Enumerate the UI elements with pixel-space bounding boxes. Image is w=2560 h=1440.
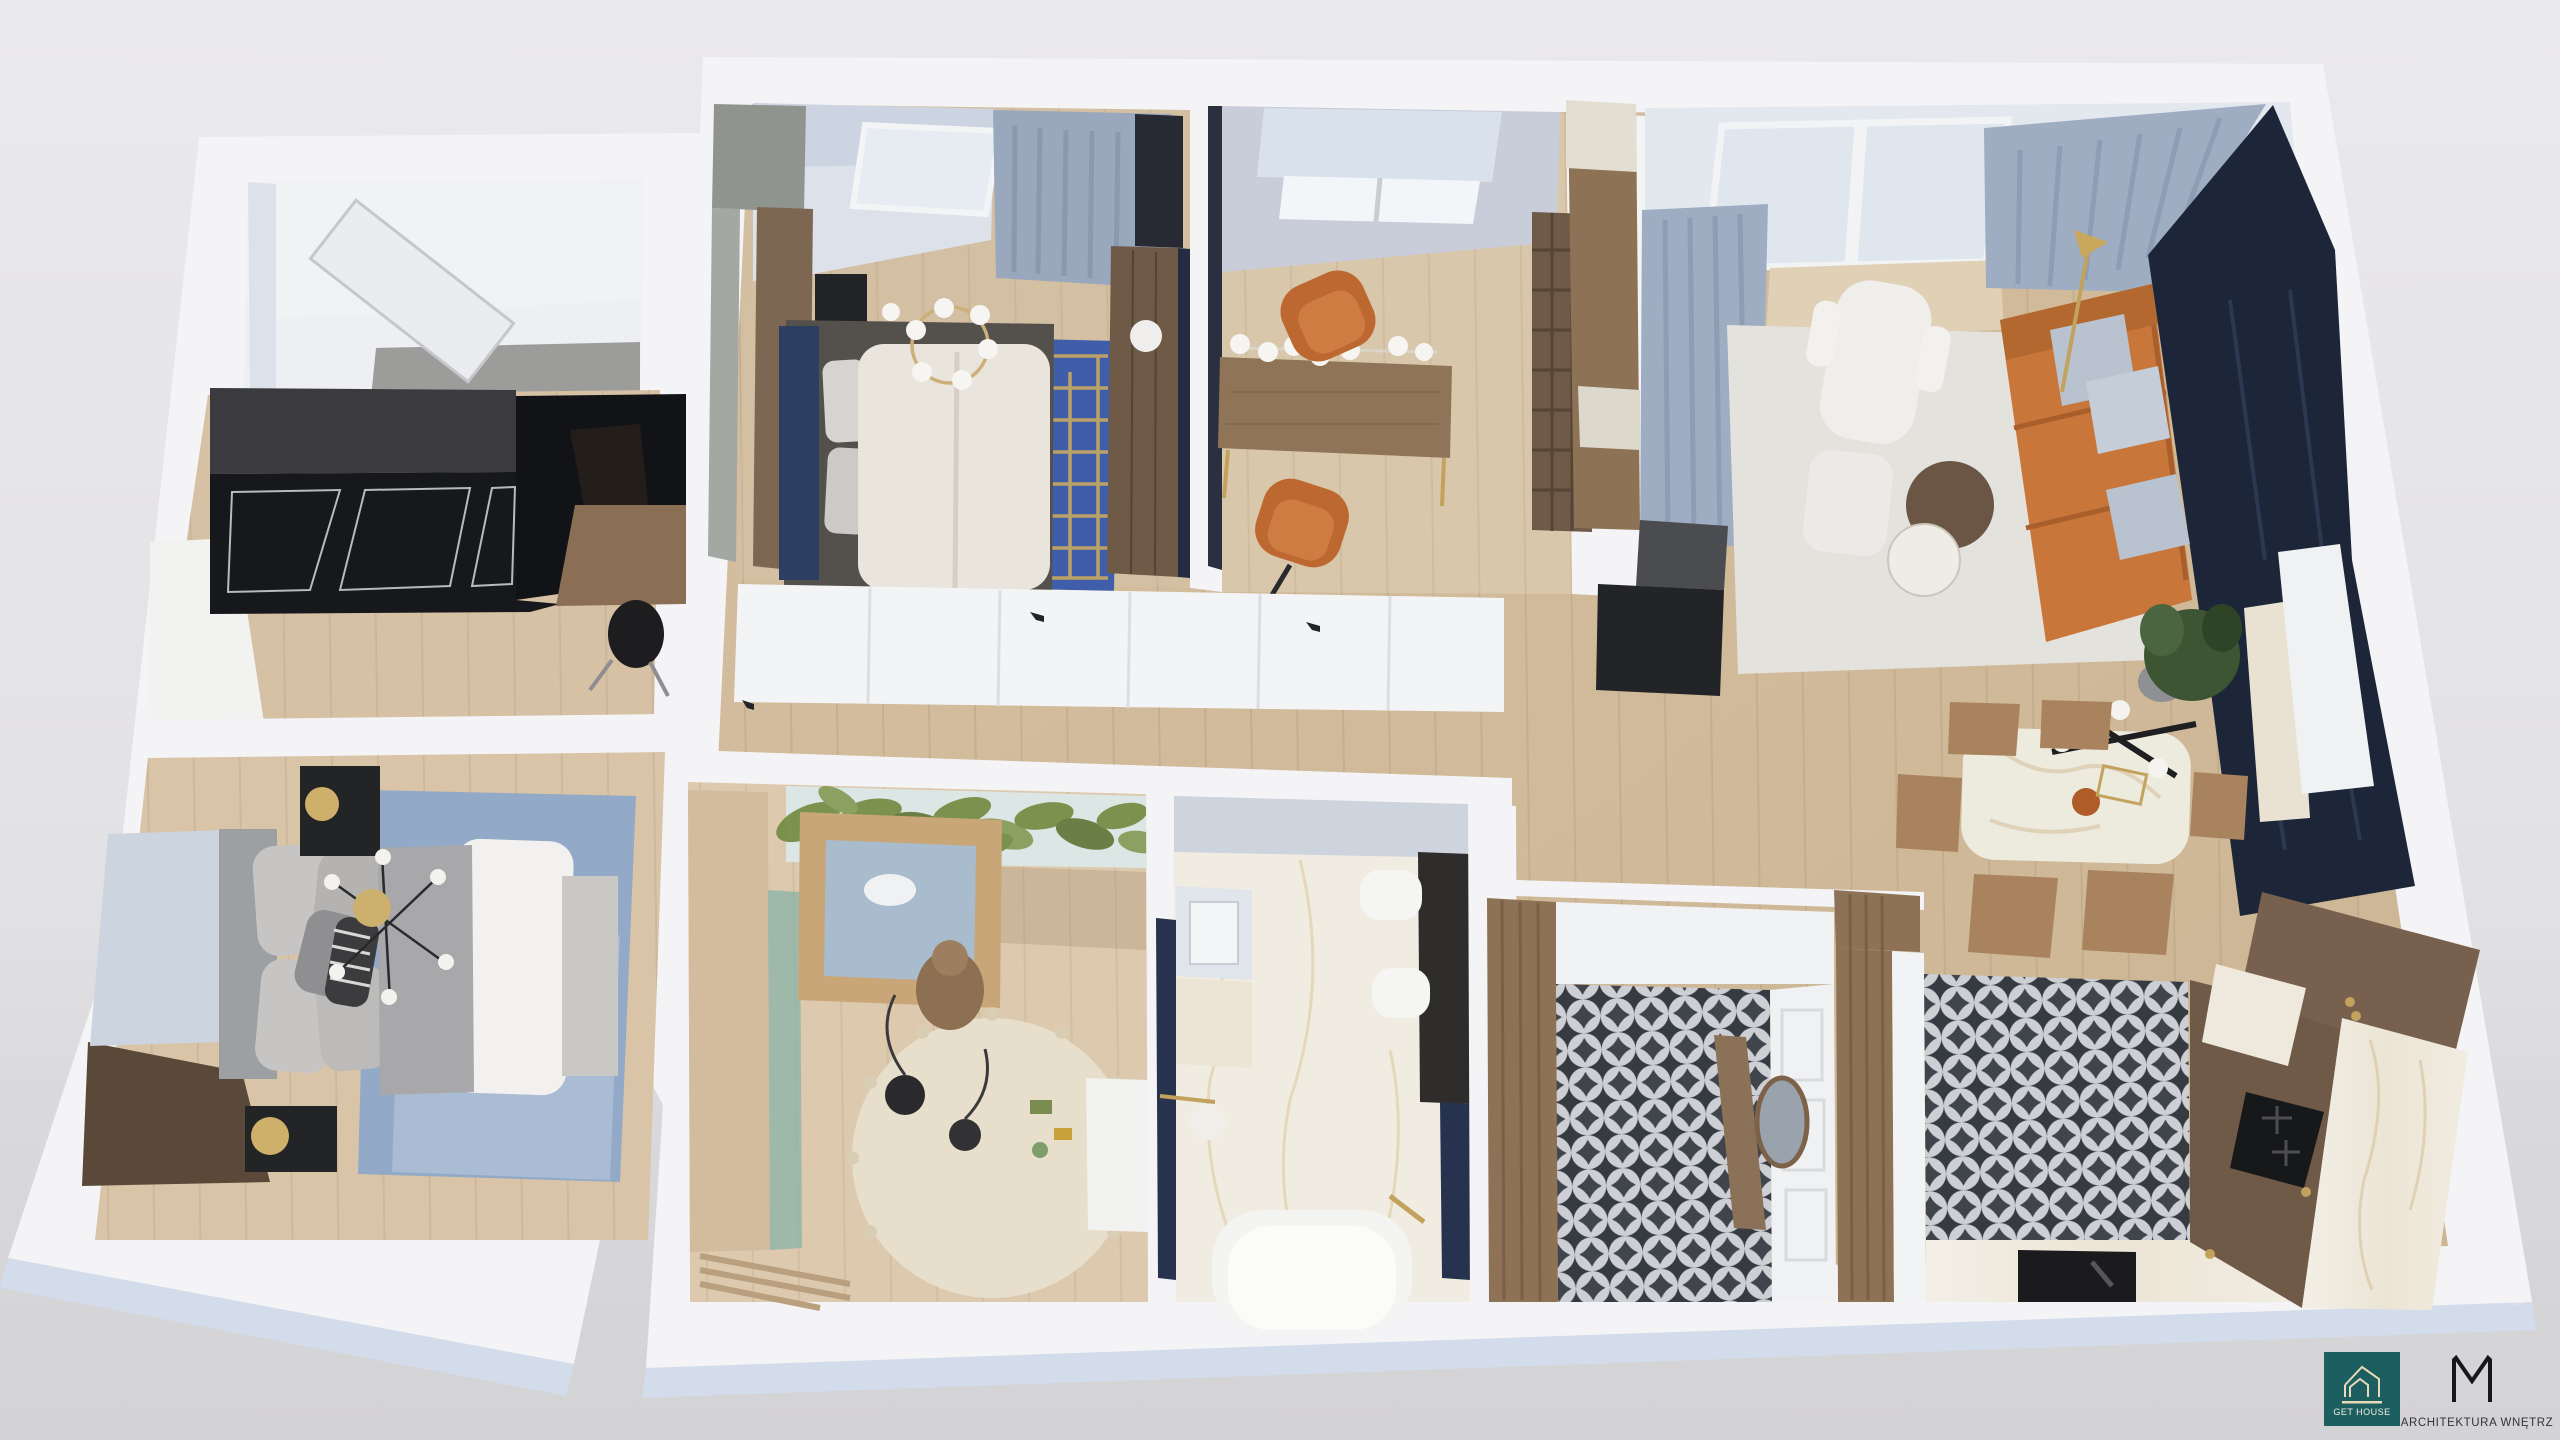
svg-text:GET HOUSE: GET HOUSE xyxy=(2333,1407,2390,1417)
svg-text:ARCHITEKTURA WNĘTRZ: ARCHITEKTURA WNĘTRZ xyxy=(2401,1417,2554,1429)
